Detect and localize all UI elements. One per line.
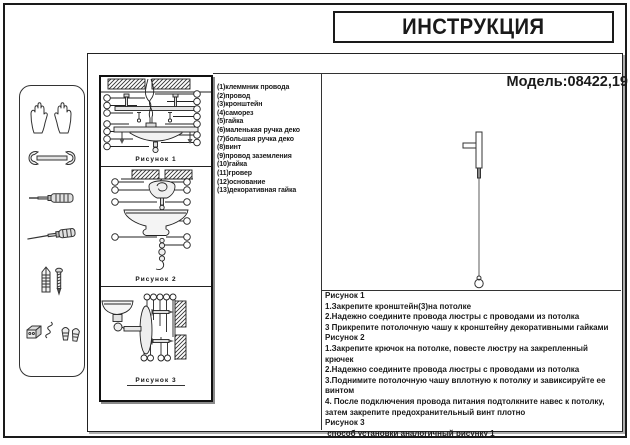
instr-step: способ установки аналогичный рисунку 1 xyxy=(325,429,617,440)
figure-1-drawing xyxy=(101,77,211,155)
part-item: (5)гайка xyxy=(217,118,313,127)
part-item: (8)винт xyxy=(217,144,313,153)
anchor-screw-icon xyxy=(38,266,66,298)
page-title: ИНСТРУКЦИЯ xyxy=(402,14,544,40)
part-item: (13)декоративная гайка xyxy=(217,187,313,196)
instr-step: 2.Надежно соедините провода люстры с про… xyxy=(325,365,617,376)
awl-screwdriver-icon xyxy=(26,224,78,244)
parts-list: (1)клеммник провода (2)провод (3)кронште… xyxy=(217,84,313,196)
gloves-icon xyxy=(29,98,73,136)
figure-3: Рисунок 3 xyxy=(101,287,211,400)
instr-step: 4. После подключения провода питания под… xyxy=(325,397,617,418)
figure-3-caption: Рисунок 3 xyxy=(101,377,211,384)
figures-panel: Рисунок 1 xyxy=(99,75,213,402)
instr-step: 1.Закрепите крючок на потолке, повесте л… xyxy=(325,344,617,365)
tools-sidebar xyxy=(19,85,85,377)
part-item: (12)основание xyxy=(217,179,313,188)
fasteners-icon xyxy=(25,318,81,346)
part-item: (3)кронштейн xyxy=(217,101,313,110)
figure-2-drawing xyxy=(101,167,211,271)
part-item: (7)большая ручка деко xyxy=(217,136,313,145)
part-item: (1)клеммник провода xyxy=(217,84,313,93)
figure-1: Рисунок 1 xyxy=(101,77,211,167)
figure-3-drawing xyxy=(101,287,211,373)
instr-fig2-title: Рисунок 2 xyxy=(325,333,617,344)
title-box: ИНСТРУКЦИЯ xyxy=(333,11,614,43)
instr-fig1-title: Рисунок 1 xyxy=(325,291,617,302)
instr-step: 3 Прикрепите потолочную чашу к кронштейн… xyxy=(325,323,617,334)
screwdriver-icon xyxy=(28,192,76,204)
instruction-sheet: ИНСТРУКЦИЯ Модель:08422,19 xyxy=(0,0,630,445)
wrench-icon xyxy=(28,150,76,166)
figure-1-caption: Рисунок 1 xyxy=(101,156,211,163)
instr-step: 1.Закрепите кронштейн(3)на потолке xyxy=(325,302,617,313)
part-item: (10)гайка xyxy=(217,161,313,170)
part-item: (2)провод xyxy=(217,93,313,102)
instr-fig3-title: Рисунок 3 xyxy=(325,418,617,429)
instr-step: 2.Надежно соедините провода люстры с про… xyxy=(325,312,617,323)
column-divider xyxy=(321,73,322,430)
part-item: (6)маленькая ручка деко xyxy=(217,127,313,136)
part-item: (11)гровер xyxy=(217,170,313,179)
installation-instructions: Рисунок 1 1.Закрепите кронштейн(3)на пот… xyxy=(325,291,617,439)
instr-step: 3.Поднимите потолочную чашу вплотную к п… xyxy=(325,376,617,397)
figure-2: Рисунок 2 xyxy=(101,167,211,287)
model-label: Модель:08422,19 xyxy=(327,74,628,92)
pendant-lamp-drawing xyxy=(430,125,520,292)
figure-2-caption: Рисунок 2 xyxy=(101,276,211,283)
